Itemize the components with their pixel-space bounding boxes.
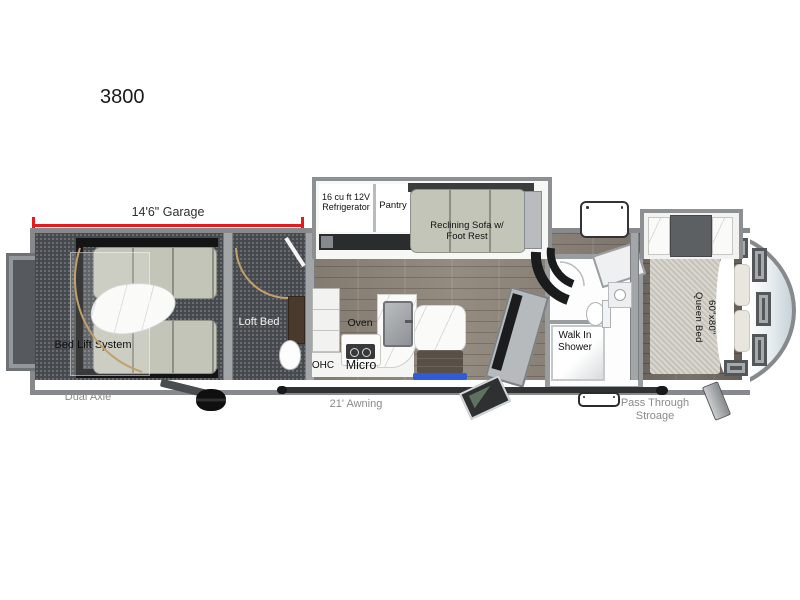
nightstand-bottom (724, 360, 748, 376)
wardrobe-right (712, 217, 733, 255)
front-dresser-top (752, 248, 767, 282)
front-dresser-middle (756, 292, 771, 326)
panel-screw-right (621, 206, 624, 209)
stabilizer-jack-foot (196, 389, 226, 411)
micro-label: Micro (338, 358, 384, 372)
rv-floorplan-3800: 3800 14'6" Garage Bed Lift System Loft B… (0, 0, 800, 600)
pass-through-storage-label: Pass Through Stroage (600, 397, 710, 422)
awning-end-left (277, 386, 287, 394)
reclining-sofa-label: Reclining Sofa w/ Foot Rest (412, 221, 522, 243)
loft-toilet (279, 340, 301, 370)
storage-door-screw-left (583, 396, 585, 398)
exterior-panel-marker (580, 201, 629, 238)
entry-steps-tread (469, 386, 497, 409)
kitchen-ohc-cabinets (312, 288, 340, 356)
awning-label: 21' Awning (306, 398, 406, 411)
bed-lift-frame-top (76, 238, 218, 247)
panel-screw-left (586, 206, 589, 209)
oven-label: Oven (338, 317, 382, 329)
kitchen-sink (383, 301, 413, 347)
pillow-top (734, 264, 750, 306)
ramp-door-panel (13, 260, 35, 364)
queen-bed-sheet (716, 250, 734, 374)
model-number: 3800 (100, 86, 145, 109)
pantry-label: Pantry (376, 201, 410, 212)
slide-end-table (524, 191, 542, 249)
walk-in-shower-label: Walk In Shower (547, 330, 603, 353)
bed-lift-platform (70, 252, 150, 376)
burner-left (350, 348, 359, 357)
garage-dimension-label: 14'6" Garage (68, 205, 268, 219)
wall-garage-loft (223, 233, 233, 380)
wardrobe-center-chest (670, 215, 712, 257)
burner-panel (346, 344, 375, 359)
entry-door-mat (413, 373, 467, 380)
vanity-basin (614, 289, 626, 301)
queen-bed-label: 60"x80" Queen Bed (690, 262, 718, 372)
refrigerator-label: 16 cu ft 12V Refrigerator (319, 192, 373, 213)
awning-end-right (656, 386, 668, 395)
burner-right (362, 348, 371, 357)
loft-cabinet (288, 296, 305, 344)
loft-bed-label: Loft Bed (228, 316, 290, 329)
dual-axle-label: Dual Axle (38, 391, 138, 404)
front-dresser-bottom (752, 334, 767, 366)
pillow-bottom (734, 310, 750, 352)
kitchen-slideout: 16 cu ft 12V Refrigerator Pantry Reclini… (312, 177, 552, 259)
bed-lift-system-label: Bed Lift System (38, 339, 148, 352)
ohc-label: OHC (306, 360, 340, 372)
garage-dimension-line (33, 224, 303, 227)
dinette-table (414, 305, 466, 352)
wardrobe-left (648, 217, 670, 255)
bedroom-wardrobe-slideout (640, 209, 743, 259)
bath-vanity-sink (608, 282, 632, 308)
faucet (405, 320, 413, 323)
dinette-bench (417, 350, 463, 374)
slide-counter (319, 234, 411, 250)
